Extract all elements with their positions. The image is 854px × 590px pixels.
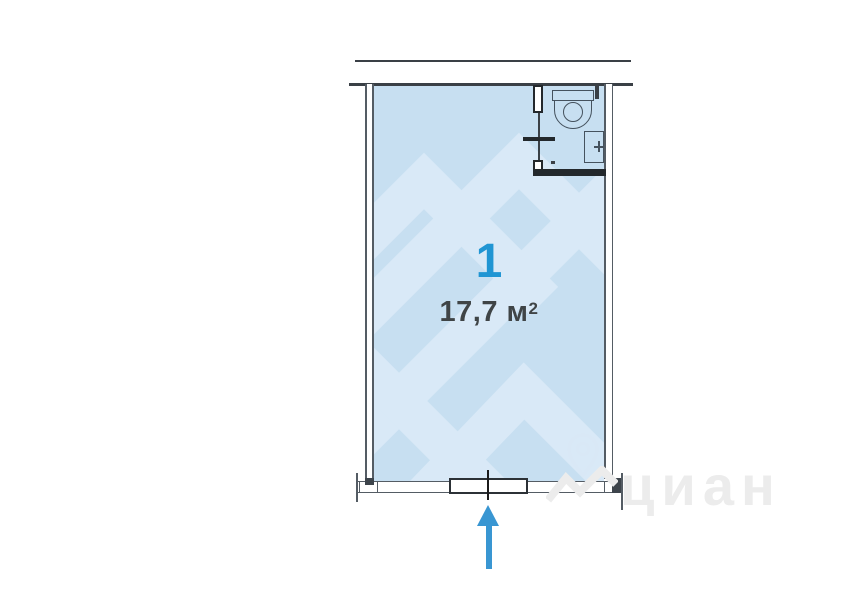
room-area-label: 17,7 м2 <box>374 296 604 329</box>
toilet-seat-icon <box>563 102 583 122</box>
upper-wall-line <box>355 60 631 62</box>
wall-end-left <box>365 478 374 485</box>
entrance-arrow-icon <box>477 505 499 526</box>
bathroom-wall-bottom <box>533 169 606 176</box>
bathroom-door-jamb <box>533 85 543 113</box>
brand-zigzag-icon <box>546 466 618 506</box>
wall-left <box>365 84 374 482</box>
bathroom-wall-notch <box>533 160 543 171</box>
wall-mark <box>551 161 555 164</box>
entry-axis-line <box>487 470 489 500</box>
room-area-value: 17,7 м <box>440 296 529 328</box>
faucet-icon <box>598 141 600 152</box>
wall-right <box>604 84 613 479</box>
room-area-superscript: 2 <box>528 299 538 318</box>
wall-tick-left <box>356 473 358 502</box>
room-number-label: 1 <box>374 238 604 286</box>
entrance-arrow-shaft <box>486 524 492 569</box>
duct-line <box>595 85 599 99</box>
brand-watermark-text: циан <box>620 458 782 514</box>
floor-plan-canvas: 1 17,7 м2 циан <box>0 0 854 590</box>
bathroom-door-leaf <box>523 137 555 141</box>
